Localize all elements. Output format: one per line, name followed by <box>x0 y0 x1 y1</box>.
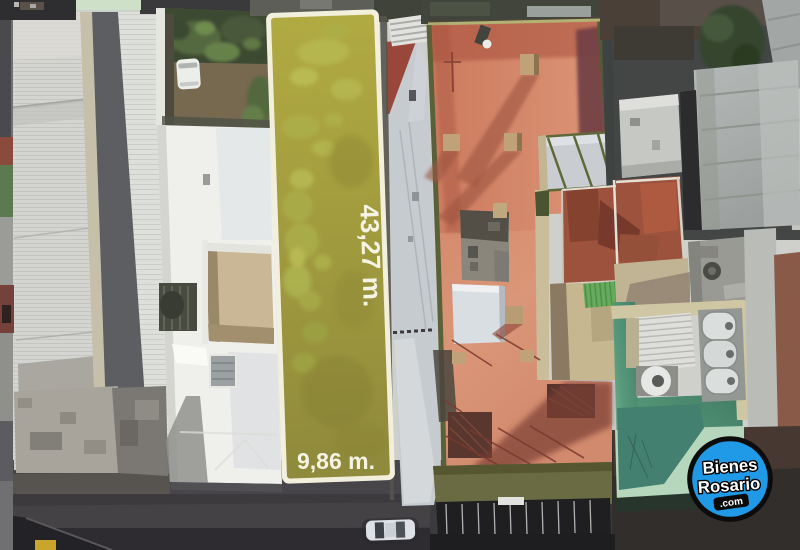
svg-text:9,86 m.: 9,86 m. <box>297 448 375 474</box>
svg-text:43,27 m.: 43,27 m. <box>354 204 388 308</box>
